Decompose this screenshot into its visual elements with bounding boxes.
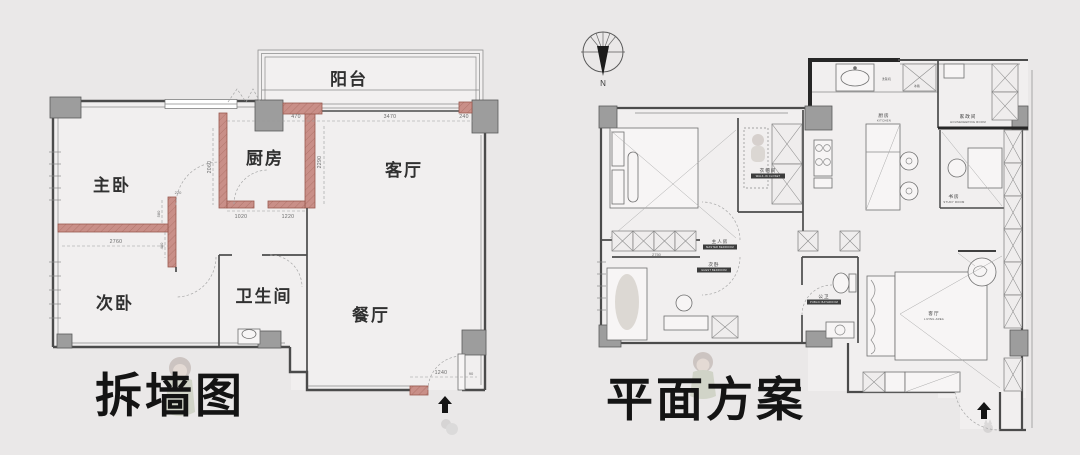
room-label-balcony: 阳台 [330, 69, 368, 89]
label-study-cn: 书房 [948, 193, 959, 200]
dim-label: 2060 [207, 161, 213, 174]
desk-icon [968, 148, 1002, 188]
dim-label: 3470 [384, 114, 397, 120]
label-living-cn: 客厅 [928, 310, 939, 317]
kitchen-island-icon [866, 124, 900, 210]
column [255, 100, 283, 131]
dim-label: 90 [469, 371, 474, 376]
column [472, 100, 498, 133]
label-kitchen-cn: 厨房 [878, 112, 889, 119]
label-master-en: MASTER BEDROOM [706, 245, 734, 249]
dim-label: 2290 [317, 156, 323, 169]
label-bathroom-en: PUBLIC BATHROOM [810, 300, 838, 304]
column [57, 334, 72, 348]
dog-sketch [441, 419, 458, 435]
dim-label: 580 [156, 210, 161, 217]
room-label-bathroom: 卫生间 [236, 286, 293, 306]
column [1010, 330, 1028, 356]
dim-label: 480 [159, 242, 164, 249]
toilet-icon [238, 329, 260, 344]
left-plan-title: 拆墙图 [95, 369, 245, 422]
toilet-icon [833, 273, 856, 293]
column [805, 106, 832, 130]
label-dishwasher: 洗碗机 [882, 77, 891, 81]
column [50, 97, 81, 118]
label-master-cn: 主人房 [712, 238, 729, 245]
label-housekeeping-en: HOUSEKEEPING ROOM [950, 120, 986, 124]
dim-label: 1220 [282, 214, 295, 220]
label-kitchen-en: KITCHEN [877, 119, 891, 123]
column [599, 106, 617, 128]
floor-plans-svg: 470 3470 240 2060 2290 220 580 480 2760 … [0, 0, 1080, 455]
room-label-second: 次卧 [96, 293, 134, 313]
dim-label: 470 [291, 114, 301, 120]
room-label-kitchen: 厨房 [246, 148, 284, 168]
label-closet-cn: 衣帽间 [760, 167, 777, 174]
vanity-icon [826, 322, 854, 338]
right-plan-layout: N [581, 32, 1032, 433]
label-study-en: STUDY ROOM [943, 200, 965, 204]
right-plan-title: 平面方案 [606, 373, 806, 426]
compass-n-label: N [600, 79, 606, 88]
sofa-bed-icon [867, 272, 987, 360]
dim-label: 240 [459, 114, 469, 120]
figure-sketch [751, 134, 765, 162]
compass-icon: N [581, 32, 625, 88]
floor-plan-canvas: 470 3470 240 2060 2290 220 580 480 2760 … [0, 0, 1080, 455]
stove-icon [814, 140, 832, 188]
label-guest-cn: 次卧 [708, 261, 719, 268]
label-fridge: 冰箱 [914, 84, 920, 88]
chair-icon [676, 295, 692, 311]
entry-arrow-icon [438, 396, 452, 413]
label-guest-en: GUEST BEDROOM [701, 268, 727, 272]
chair-icon [948, 159, 966, 177]
sink-icon [836, 64, 874, 91]
column [462, 330, 486, 355]
label-living-en: LIVING AREA [924, 317, 944, 321]
desk-icon [664, 316, 708, 330]
dim-label: 1020 [235, 214, 248, 220]
tv-cabinet-icon [863, 372, 960, 392]
room-label-master: 主卧 [93, 175, 131, 195]
column [258, 331, 281, 348]
left-plan-demolition: 470 3470 240 2060 2290 220 580 480 2760 … [49, 50, 498, 435]
room-label-living: 客厅 [384, 160, 423, 180]
dim-label: 2760 [110, 239, 123, 245]
label-bathroom-cn: 公卫 [818, 294, 829, 299]
dim-label: 1240 [435, 370, 448, 376]
room-label-dining: 餐厅 [352, 305, 390, 325]
label-housekeeping-cn: 家政间 [960, 113, 977, 120]
label-closet-en: WALK-IN CLOSET [756, 174, 781, 178]
dim-label: 220 [175, 190, 182, 195]
